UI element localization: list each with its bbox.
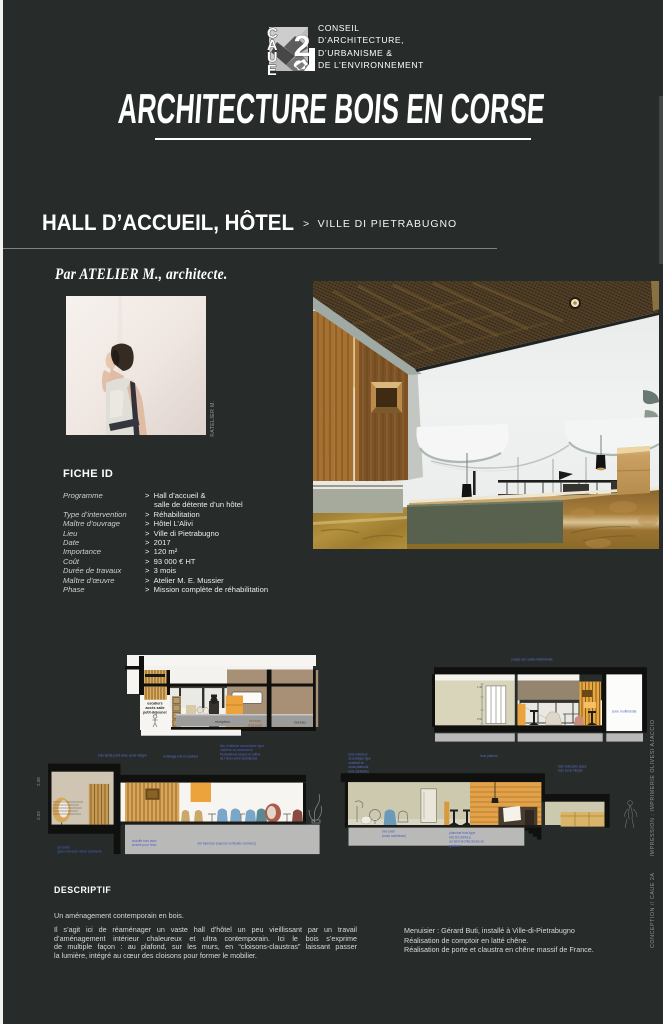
- svg-text:arrivée pour l’eau: arrivée pour l’eau: [132, 843, 157, 847]
- svg-text:©ATELIER M.: ©ATELIER M.: [209, 400, 216, 437]
- svg-text:bois socle intégré: bois socle intégré: [558, 769, 583, 773]
- svg-text:bois sanitaires: bois sanitaires: [349, 769, 370, 773]
- svg-text:2.38: 2.38: [36, 777, 41, 786]
- svg-text:accès salle: accès salle: [146, 706, 165, 710]
- svg-text:gazon terrazzo verde architect: gazon terrazzo verde architecte: [57, 850, 102, 854]
- svg-text:d’accueil: d’accueil: [248, 724, 262, 728]
- svg-text:bureau: bureau: [294, 721, 305, 725]
- svg-text:petit-déjeuner: petit-déjeuner: [143, 711, 167, 715]
- svg-text:2.03: 2.03: [36, 811, 41, 820]
- svg-text:escaliers: escaliers: [147, 702, 162, 706]
- svg-text:bureau: bureau: [249, 719, 260, 723]
- svg-text:(murs architecte): (murs architecte): [382, 834, 406, 838]
- svg-text:E: E: [267, 63, 277, 78]
- svg-text:bois teinté peint avec socle i: bois teinté peint avec socle intégré: [98, 754, 147, 758]
- svg-text:gradient: gradient: [449, 844, 461, 848]
- svg-text:2: 2: [294, 30, 311, 63]
- svg-text:CONCEPTION // CAUE 2A I: CONCEPTION // CAUE 2A IMPRESSION : IMPRI…: [650, 720, 656, 948]
- svg-text:1,48: 1,48: [477, 685, 483, 689]
- svg-text:de l’hiver entre architectes: de l’hiver entre architectes: [220, 757, 258, 761]
- svg-text:0,50: 0,50: [477, 717, 483, 721]
- svg-text:éclairage mis en plafond: éclairage mis en plafond: [164, 755, 199, 759]
- svg-text:bois plafond: bois plafond: [480, 754, 497, 758]
- svg-text:coupe sur salle multimédia: coupe sur salle multimédia: [511, 658, 552, 662]
- svg-text:zone multimédia: zone multimédia: [612, 710, 637, 714]
- svg-text:Sol faïences (rayures vertical: Sol faïences (rayures verticales colorée…: [197, 842, 255, 846]
- svg-text:réception: réception: [215, 720, 230, 724]
